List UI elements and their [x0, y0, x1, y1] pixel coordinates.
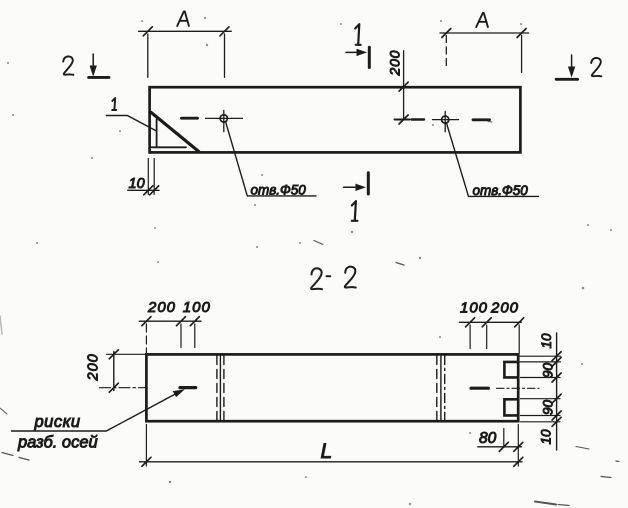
svg-text:90: 90 — [541, 362, 556, 378]
svg-text:200: 200 — [387, 50, 403, 77]
svg-text:200: 200 — [147, 299, 176, 316]
svg-text:200: 200 — [86, 353, 102, 381]
svg-text:10: 10 — [539, 429, 554, 445]
svg-text:90: 90 — [541, 399, 556, 415]
svg-text:80: 80 — [479, 430, 497, 447]
svg-text:10: 10 — [129, 176, 145, 192]
svg-text:10: 10 — [539, 333, 554, 349]
svg-text:отв.Ф50: отв.Ф50 — [473, 183, 529, 198]
svg-text:риски: риски — [34, 413, 81, 431]
svg-text:отв.Ф50: отв.Ф50 — [251, 183, 307, 198]
svg-text:100: 100 — [183, 299, 211, 316]
svg-text:разб. осей: разб. осей — [17, 434, 98, 452]
svg-text:200: 200 — [490, 300, 519, 317]
svg-text:L: L — [321, 440, 333, 463]
svg-text:100: 100 — [460, 300, 488, 317]
